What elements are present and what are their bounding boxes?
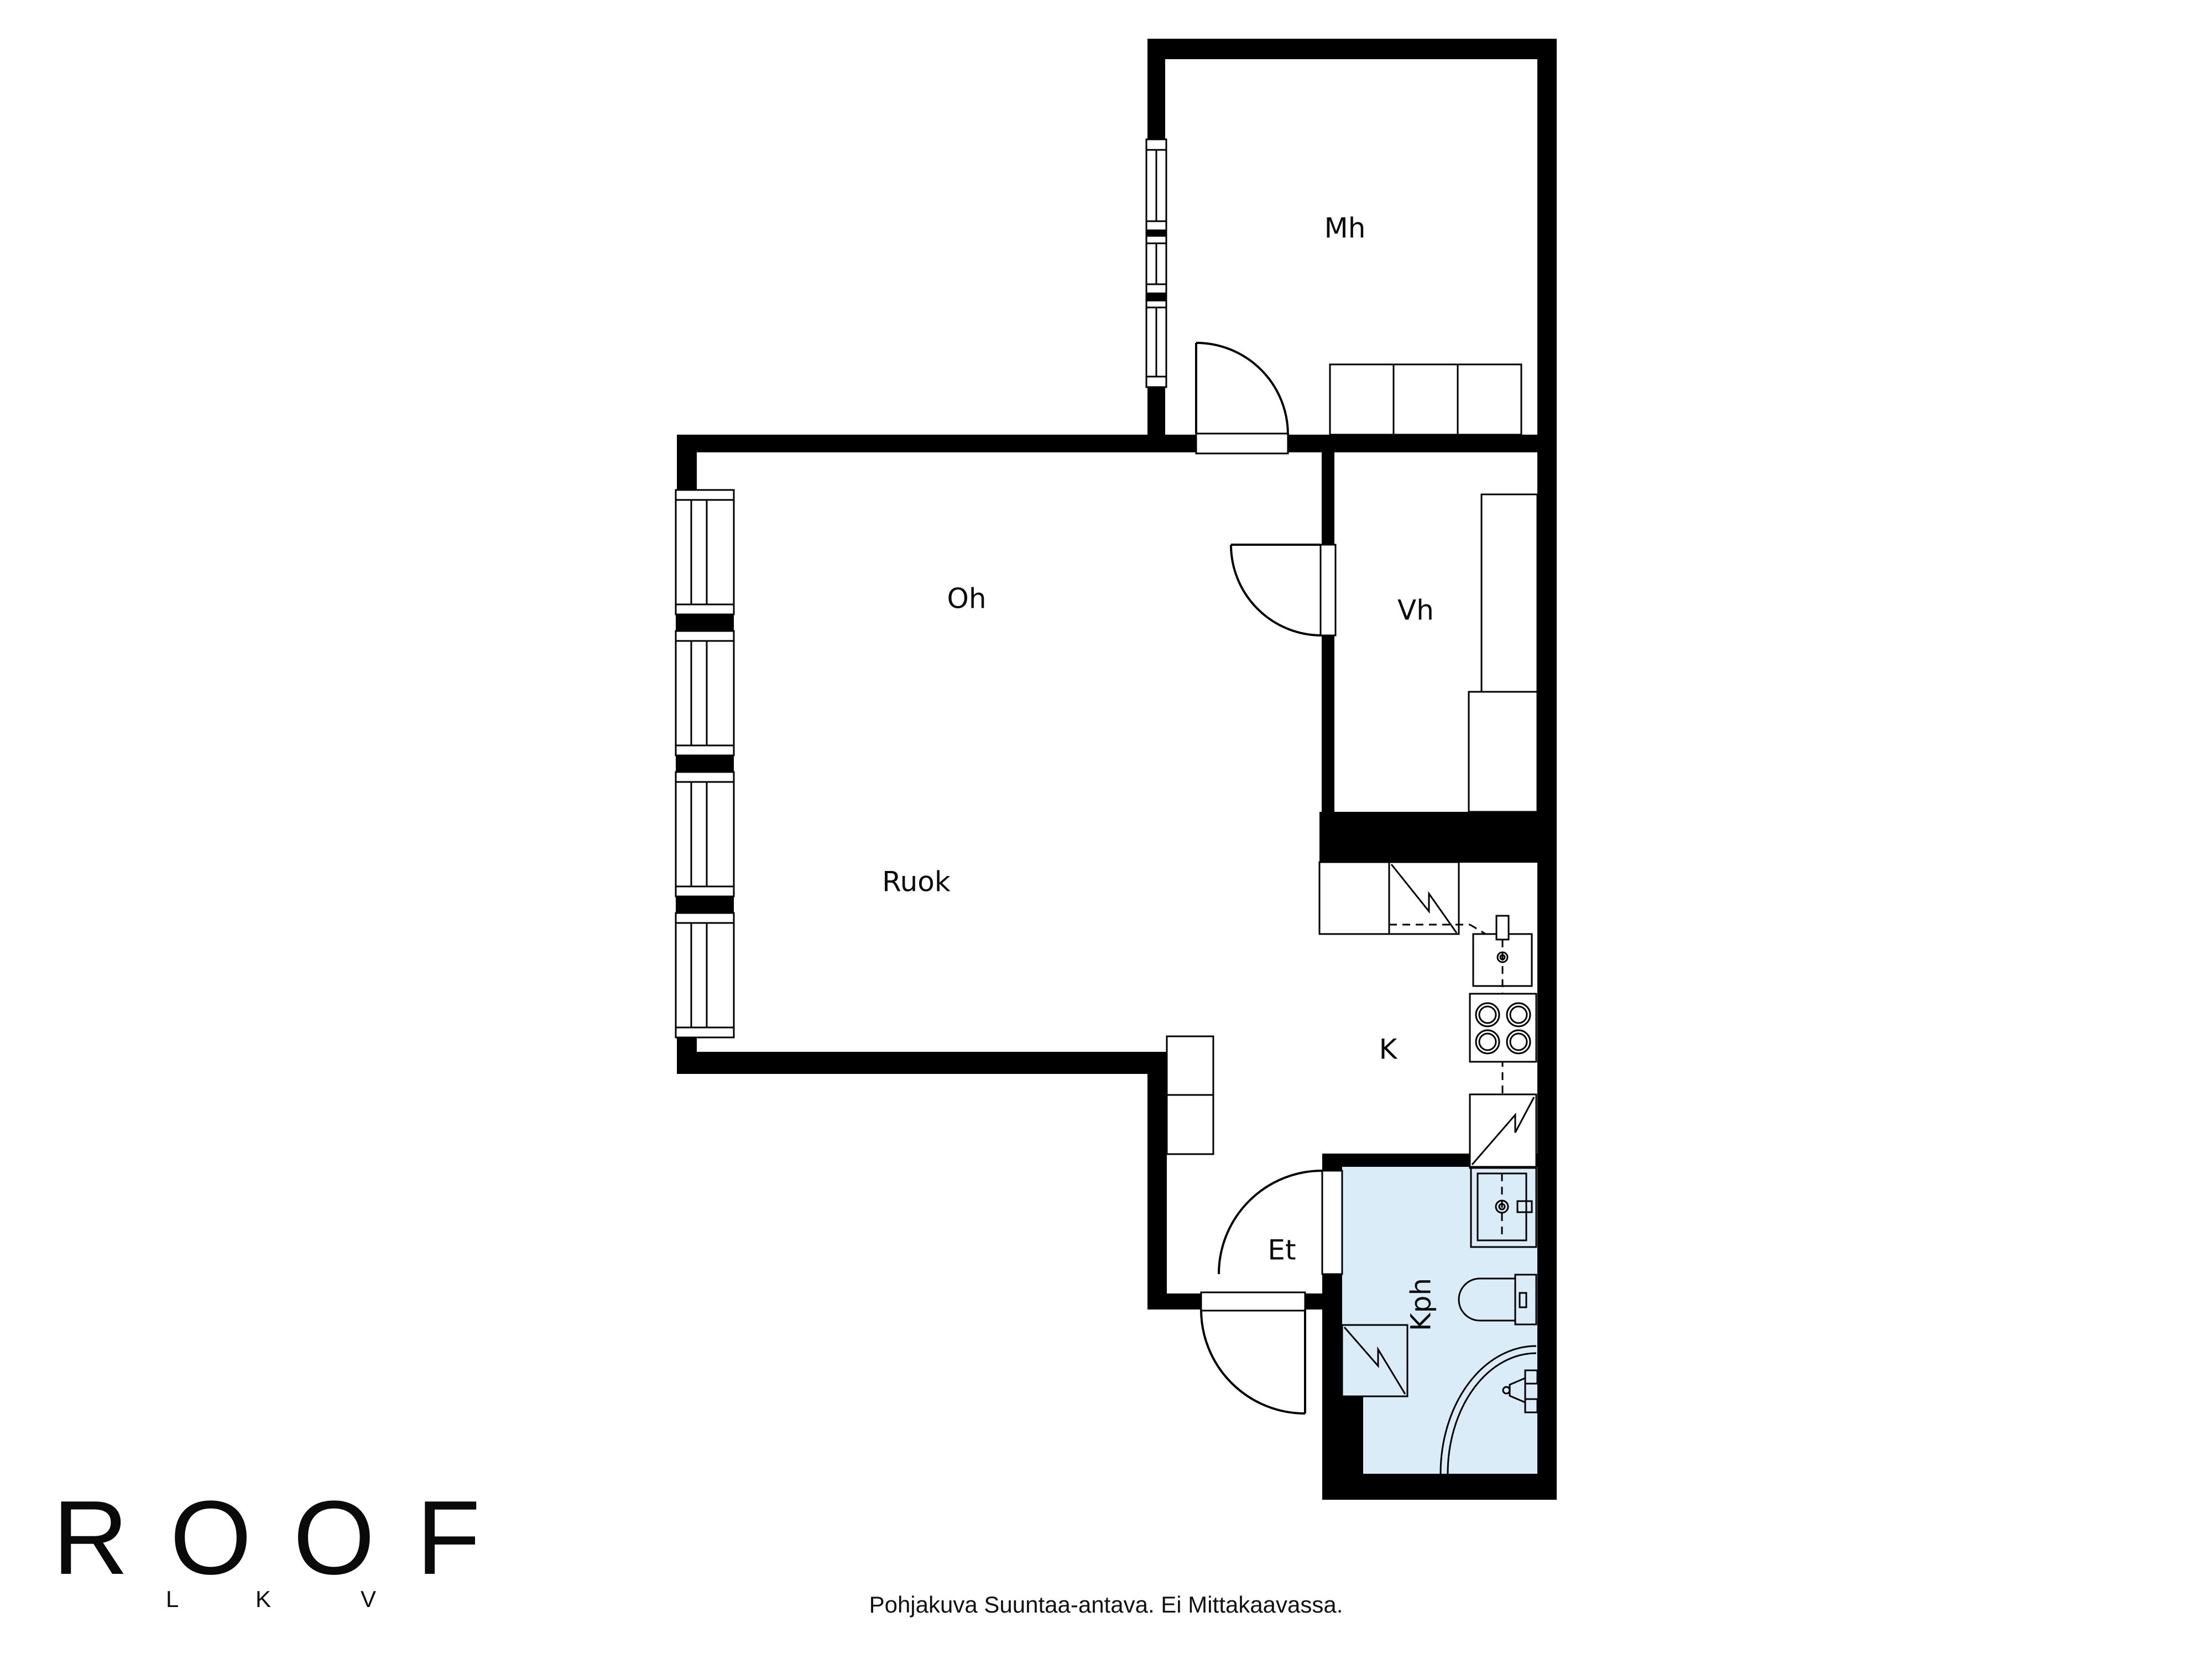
wall-entry-bottom-left [1147,1293,1201,1310]
kitchen-counter [1319,862,1389,934]
bedroom-door [1196,343,1288,453]
living-window-2 [676,631,734,755]
wall-bathroom-left-lower [1322,1274,1342,1396]
wall-bathroom-left-post [1322,1154,1342,1171]
closet-door [1231,545,1335,635]
label-entry: Et [1267,1234,1296,1266]
wall-bedroom-top [1147,39,1557,59]
floor-plan-page: Mh Oh Ruok Vh K Et Kph ROOF L K V Pohjak… [0,0,2212,1659]
wall-right-outer [1537,39,1557,1500]
wall-entry-left [1147,1052,1167,1310]
entry-door [1201,1292,1305,1413]
label-dining: Ruok [882,866,951,898]
disclaimer-text: Pohjakuva Suuntaa-antava. Ei Mittakaavas… [869,1592,1343,1618]
wall-band-living-top-right [1288,435,1537,452]
kitchen-sink [1473,916,1532,986]
entry-shelves [1167,1036,1213,1154]
bedroom-window [1146,139,1166,387]
kitchen-fridge [1389,862,1459,934]
wall-living-closet-lower [1322,635,1334,812]
logo-letter-l: L [166,1586,178,1612]
wall-living-closet-upper [1322,452,1334,545]
wall-closet-kitchen-band [1319,812,1557,863]
label-closet: Vh [1397,594,1434,627]
logo-letter-k: K [255,1586,271,1612]
wall-bathroom-bottom [1322,1474,1557,1500]
footer: ROOF L K V Pohjakuva Suuntaa-antava. Ei … [53,1479,1343,1618]
floor-plan-canvas: Mh Oh Ruok Vh K Et Kph ROOF L K V Pohjak… [0,0,2212,1659]
wall-dining-bottom [677,1052,1167,1074]
kitchen-stove [1470,994,1536,1062]
kitchen-dishwasher [1470,1094,1536,1168]
label-living: Oh [947,583,986,615]
bedroom-wardrobe [1330,364,1521,435]
label-bathroom: Kph [1405,1278,1437,1331]
label-kitchen: K [1379,1034,1398,1066]
closet-wardrobe [1469,494,1537,812]
label-bedroom: Mh [1324,212,1366,244]
living-window-1 [676,490,734,614]
windows [676,139,1166,1037]
logo-brand-text: ROOF [53,1479,522,1597]
living-windows [676,490,734,1037]
wall-band-living-top-left [677,435,1196,452]
kitchen-fixtures [1319,862,1536,1168]
living-window-3 [676,772,734,896]
living-window-4 [676,913,734,1037]
logo-letter-v: V [361,1586,376,1612]
